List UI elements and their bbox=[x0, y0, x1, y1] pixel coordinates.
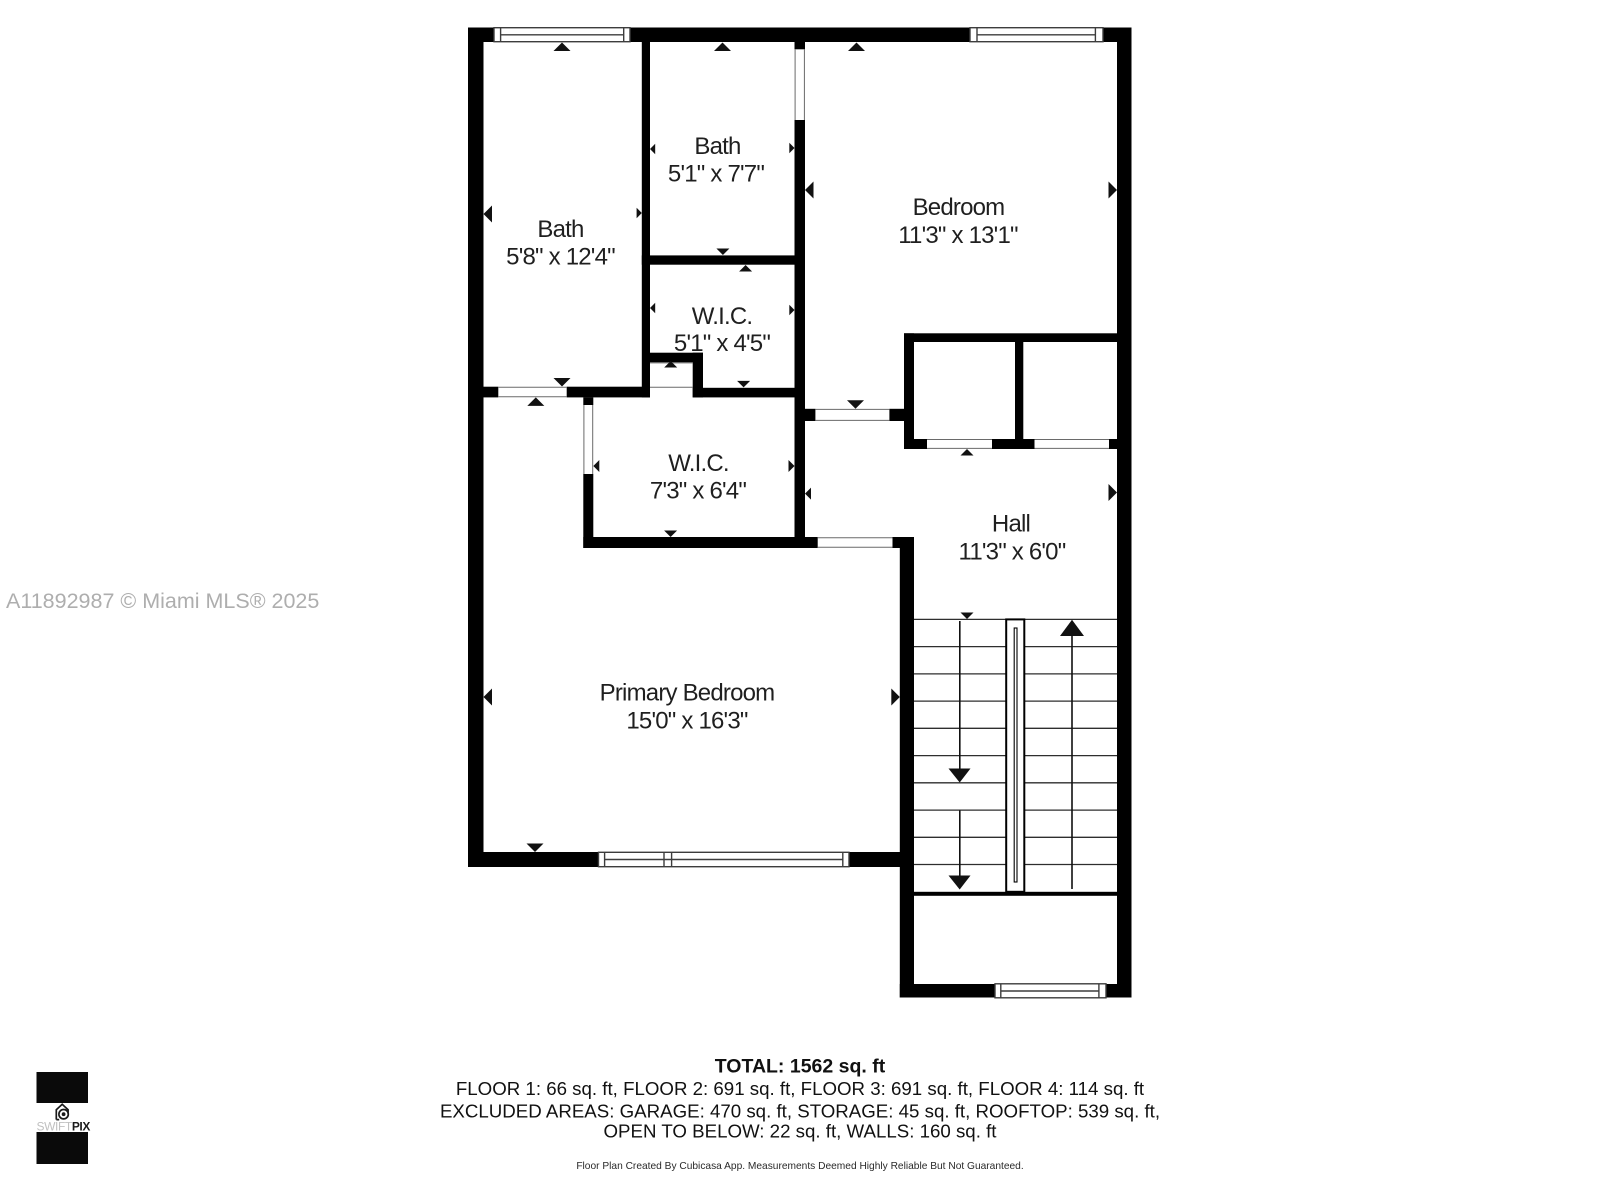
svg-text:11'3" x 6'0": 11'3" x 6'0" bbox=[959, 539, 1066, 566]
svg-text:5'1" x 7'7": 5'1" x 7'7" bbox=[668, 161, 764, 188]
svg-text:11'3" x 13'1": 11'3" x 13'1" bbox=[898, 222, 1018, 249]
svg-text:Bath: Bath bbox=[537, 216, 583, 243]
svg-text:15'0" x 16'3": 15'0" x 16'3" bbox=[626, 708, 748, 735]
svg-text:Bedroom: Bedroom bbox=[913, 194, 1005, 221]
svg-text:7'3" x 6'4": 7'3" x 6'4" bbox=[650, 478, 746, 505]
svg-text:Floor Plan Created By Cubicasa: Floor Plan Created By Cubicasa App. Meas… bbox=[576, 1161, 1023, 1172]
svg-text:OPEN TO BELOW: 22 sq. ft, WALL: OPEN TO BELOW: 22 sq. ft, WALLS: 160 sq.… bbox=[604, 1121, 998, 1142]
svg-text:Bath: Bath bbox=[694, 133, 740, 160]
svg-text:SWIFTPIX: SWIFTPIX bbox=[37, 1120, 91, 1134]
svg-text:EXCLUDED AREAS: GARAGE: 470 sq: EXCLUDED AREAS: GARAGE: 470 sq. ft, STOR… bbox=[440, 1101, 1160, 1122]
svg-text:W.I.C.: W.I.C. bbox=[668, 450, 729, 477]
svg-text:A11892987 © Miami MLS® 2025: A11892987 © Miami MLS® 2025 bbox=[6, 589, 319, 613]
svg-text:FLOOR 1: 66 sq. ft, FLOOR 2: 6: FLOOR 1: 66 sq. ft, FLOOR 2: 691 sq. ft,… bbox=[456, 1078, 1145, 1099]
svg-text:Hall: Hall bbox=[992, 511, 1030, 538]
svg-text:TOTAL: 1562 sq. ft: TOTAL: 1562 sq. ft bbox=[715, 1056, 886, 1078]
svg-text:5'8" x 12'4": 5'8" x 12'4" bbox=[506, 244, 615, 271]
svg-text:Primary Bedroom: Primary Bedroom bbox=[600, 680, 775, 707]
svg-text:5'1" x 4'5": 5'1" x 4'5" bbox=[674, 330, 770, 357]
svg-text:W.I.C.: W.I.C. bbox=[692, 303, 753, 330]
